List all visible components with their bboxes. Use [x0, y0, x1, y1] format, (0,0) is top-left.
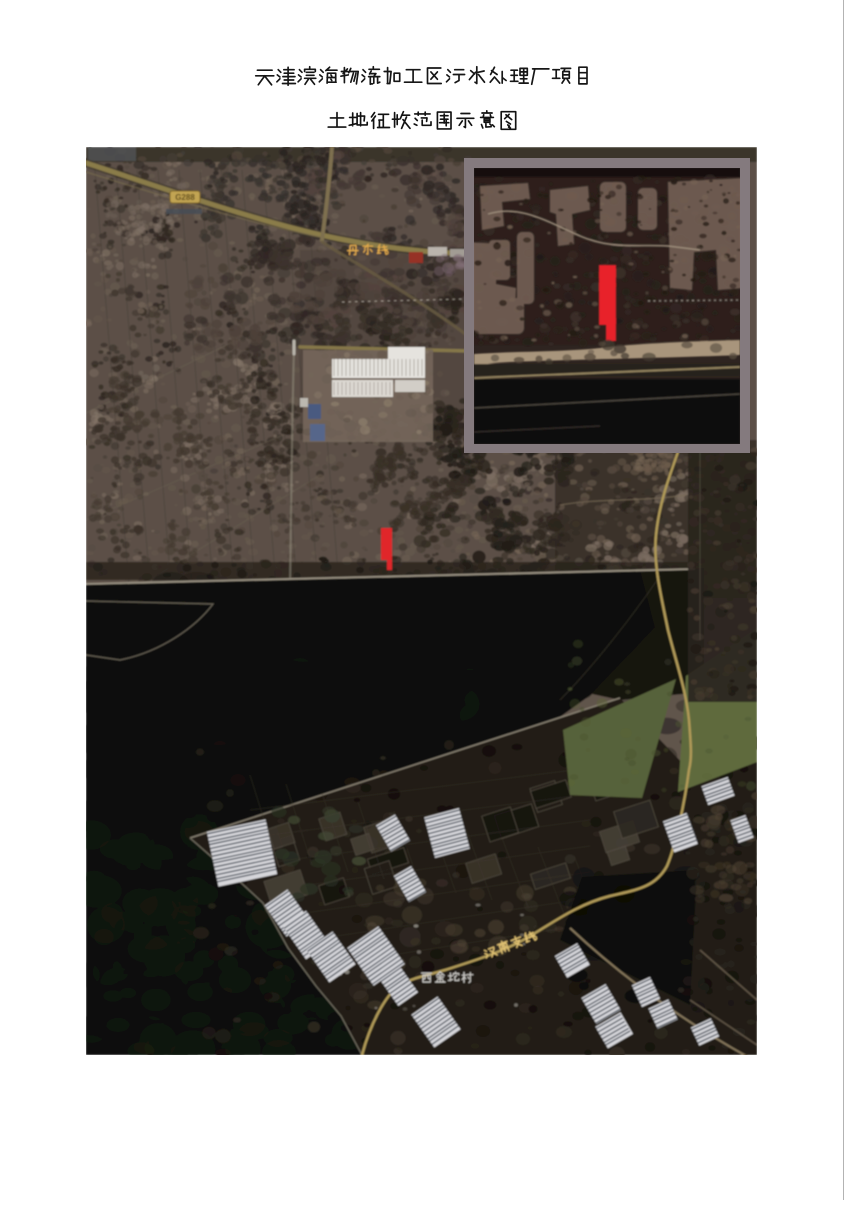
svg-text:G288: G288	[175, 193, 195, 202]
